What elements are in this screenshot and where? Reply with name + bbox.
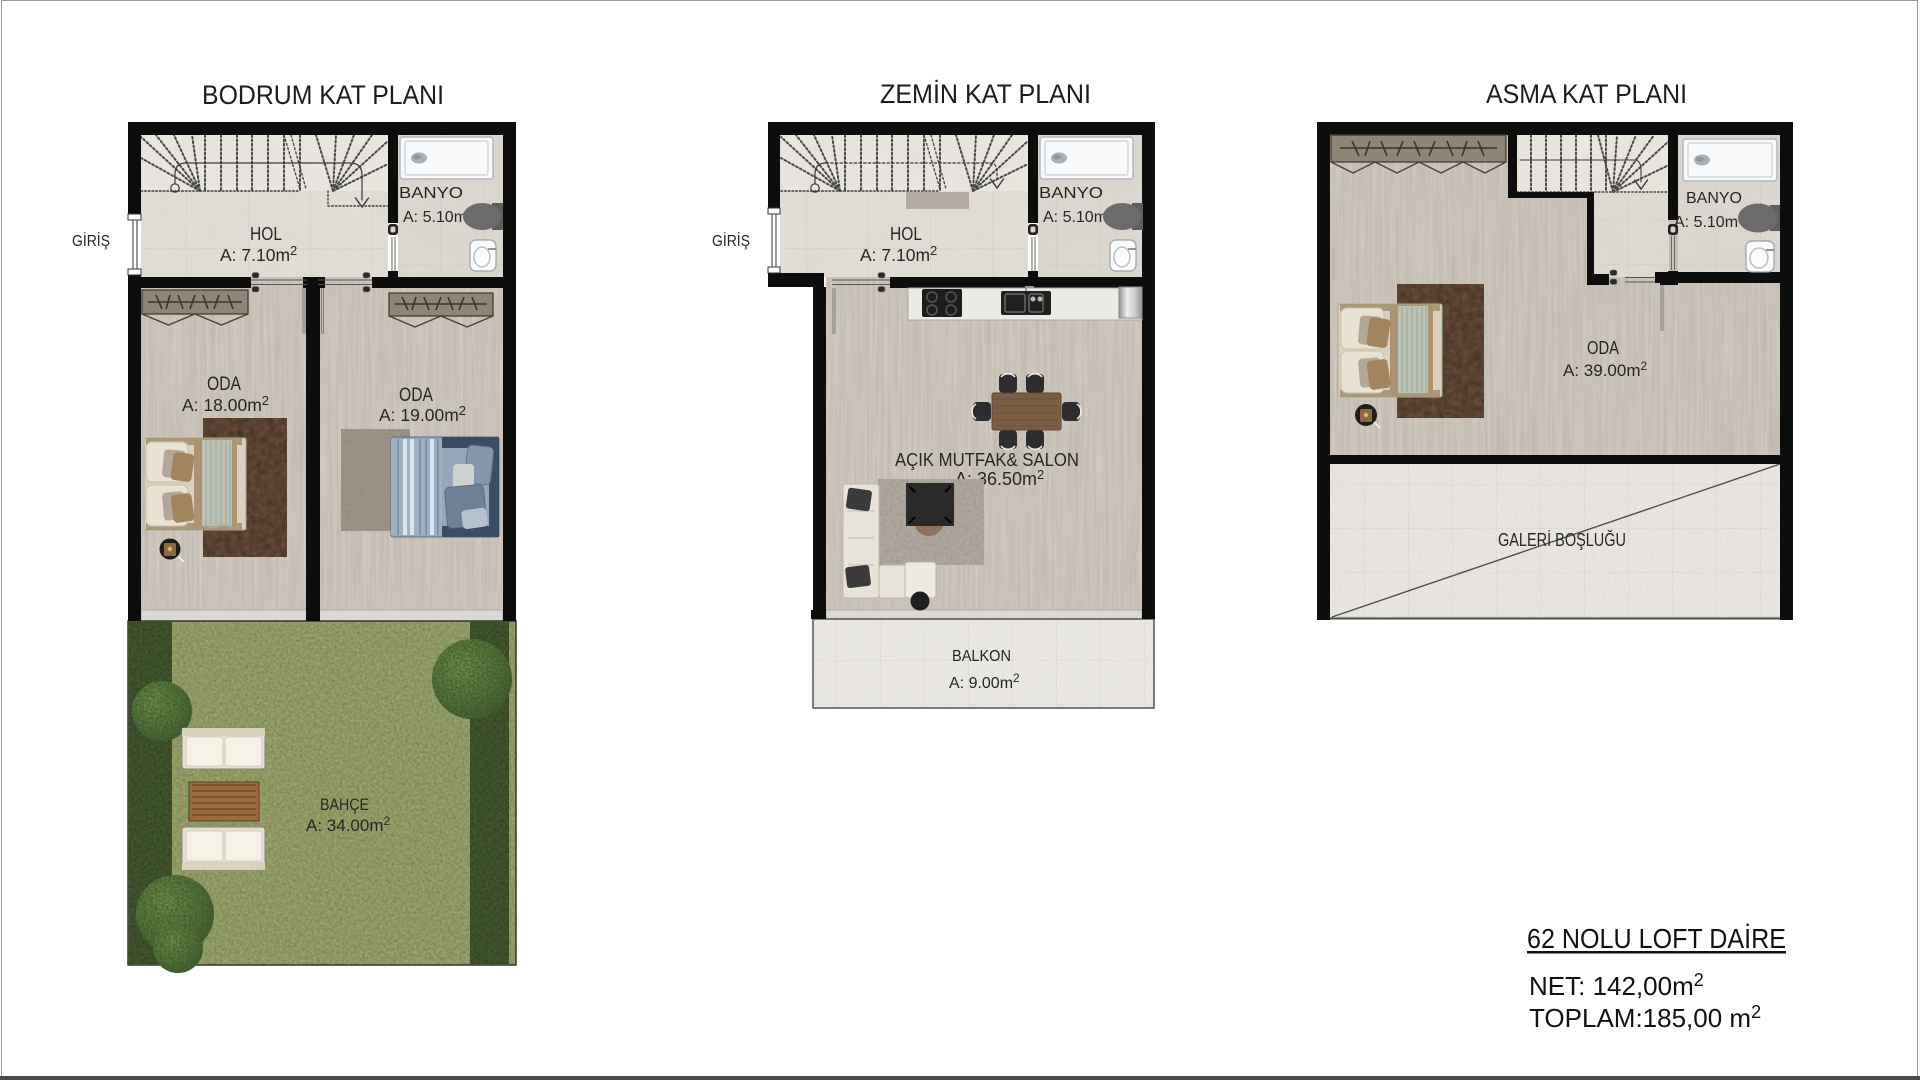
svg-text:BANYO: BANYO: [1686, 190, 1742, 207]
svg-text:A: 5.10m2: A: 5.10m2: [1674, 210, 1745, 231]
svg-text:GALERİ BOŞLUĞU: GALERİ BOŞLUĞU: [1498, 529, 1626, 550]
svg-text:HOL: HOL: [250, 224, 282, 244]
svg-text:ZEMİN KAT PLANI: ZEMİN KAT PLANI: [880, 78, 1091, 109]
svg-text:NET: 142,00m2: NET: 142,00m2: [1529, 970, 1704, 1001]
svg-text:HOL: HOL: [890, 224, 922, 244]
svg-text:A: 19.00m2: A: 19.00m2: [379, 403, 466, 425]
svg-text:A: 39.00m2: A: 39.00m2: [1563, 359, 1648, 380]
svg-text:BAHÇE: BAHÇE: [320, 795, 369, 814]
svg-text:A: 18.00m2: A: 18.00m2: [182, 393, 269, 415]
svg-text:62 NOLU LOFT DAİRE: 62 NOLU LOFT DAİRE: [1527, 923, 1786, 954]
svg-text:BODRUM KAT PLANI: BODRUM KAT PLANI: [202, 80, 444, 110]
svg-text:A: 9.00m2: A: 9.00m2: [949, 671, 1020, 692]
svg-text:A: 7.10m2: A: 7.10m2: [220, 243, 297, 265]
svg-text:TOPLAM:185,00 m2: TOPLAM:185,00 m2: [1529, 1002, 1761, 1033]
svg-text:ODA: ODA: [399, 385, 433, 406]
svg-text:ASMA KAT PLANI: ASMA KAT PLANI: [1486, 79, 1687, 109]
svg-text:AÇIK MUTFAK& SALON: AÇIK MUTFAK& SALON: [895, 450, 1079, 470]
svg-text:ODA: ODA: [207, 374, 241, 395]
svg-text:BALKON: BALKON: [952, 648, 1011, 665]
svg-text:BANYO: BANYO: [1039, 185, 1103, 202]
svg-text:A: 7.10m2: A: 7.10m2: [860, 243, 937, 265]
svg-text:BANYO: BANYO: [399, 185, 463, 202]
svg-text:ODA: ODA: [1587, 338, 1619, 358]
svg-text:GİRİŞ: GİRİŞ: [72, 232, 110, 250]
svg-text:A: 34.00m2: A: 34.00m2: [306, 814, 391, 835]
svg-text:GİRİŞ: GİRİŞ: [712, 232, 750, 250]
